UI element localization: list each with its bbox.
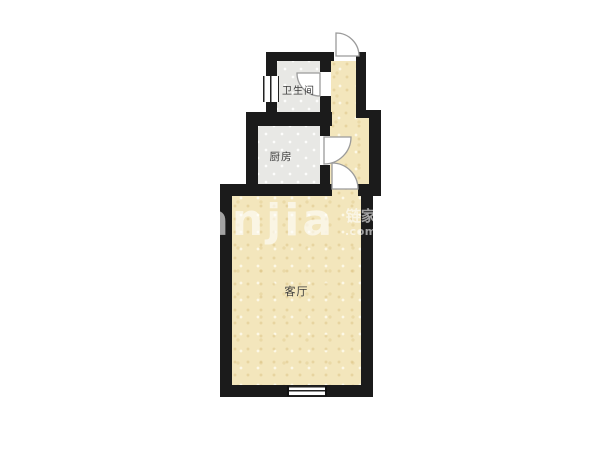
floorplan-canvas: 卫生间 厨房 客厅 Lianjia 链家 .com [0,0,600,449]
room-label-kitchen: 厨房 [250,152,312,163]
room-label-bathroom: 卫生间 [277,87,320,97]
kitchen-door [324,137,351,164]
living-room-door [332,163,358,189]
watermark-cn-block: 链家 .com [345,209,377,237]
watermark-brand-text: Lianjia [163,198,335,244]
entry-door [336,33,359,56]
watermark-cn-text: 链家 [345,209,377,224]
room-label-living-room: 客厅 [232,286,361,297]
watermark-domain-text: .com [345,226,377,237]
